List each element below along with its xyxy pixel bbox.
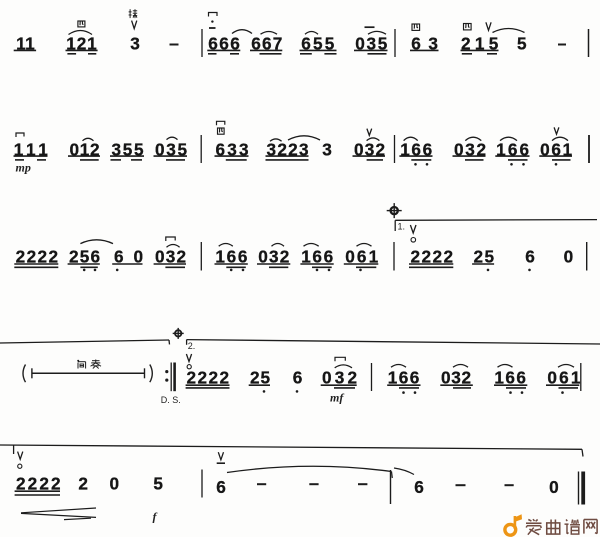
svg-text:0: 0 xyxy=(564,247,574,267)
svg-text:1.: 1. xyxy=(398,222,406,232)
svg-text:0: 0 xyxy=(549,477,559,497)
svg-text:2.: 2. xyxy=(188,341,196,351)
svg-text:5: 5 xyxy=(153,474,163,494)
svg-text:2: 2 xyxy=(78,474,88,494)
svg-text:6: 6 xyxy=(293,368,303,388)
svg-text:6: 6 xyxy=(414,477,424,497)
svg-text:6: 6 xyxy=(216,477,226,497)
svg-text:3: 3 xyxy=(130,34,140,54)
svg-text:mp: mp xyxy=(16,161,31,175)
svg-text:mf: mf xyxy=(330,391,344,405)
svg-text:3: 3 xyxy=(322,139,332,159)
svg-text:0: 0 xyxy=(110,474,120,494)
svg-text:D. S.: D. S. xyxy=(161,395,181,405)
svg-text:6: 6 xyxy=(525,247,535,267)
svg-text:5: 5 xyxy=(517,34,527,54)
